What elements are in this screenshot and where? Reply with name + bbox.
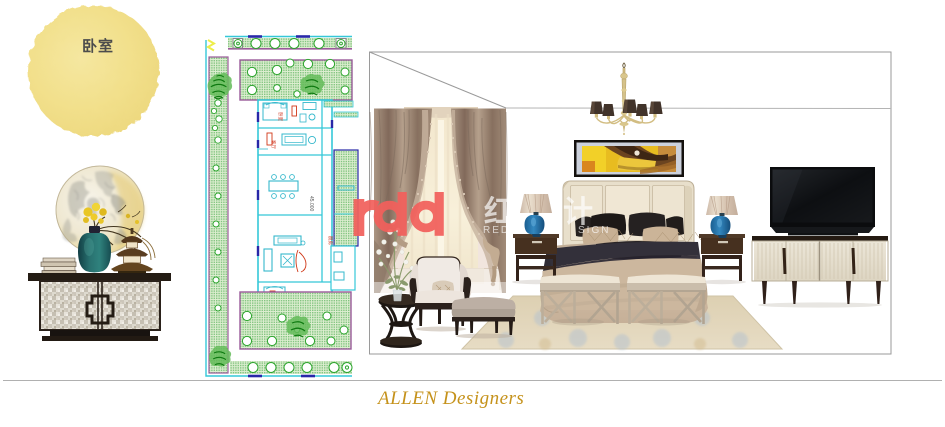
svg-text:卧室: 卧室 bbox=[277, 112, 284, 121]
svg-text:RED: RED bbox=[483, 225, 510, 236]
svg-text:卧室: 卧室 bbox=[82, 37, 114, 55]
svg-text:客厅: 客厅 bbox=[270, 140, 277, 149]
svg-text:SIGN: SIGN bbox=[578, 225, 610, 236]
svg-text:45.000: 45.000 bbox=[308, 196, 314, 212]
svg-text:ALLEN Designers: ALLEN Designers bbox=[376, 388, 524, 409]
svg-text:厨房: 厨房 bbox=[327, 236, 334, 245]
